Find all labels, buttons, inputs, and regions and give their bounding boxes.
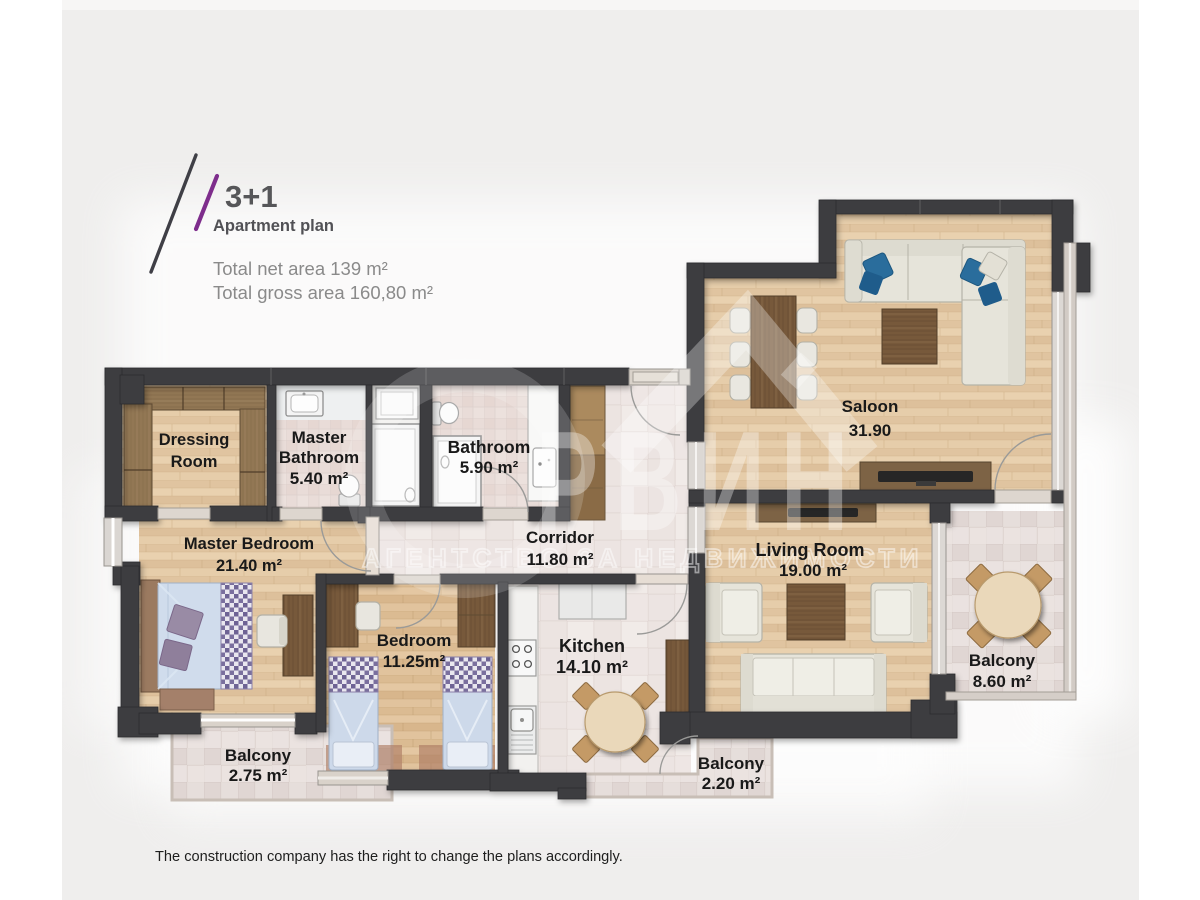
svg-text:Total gross area 160,80 m²: Total gross area 160,80 m² — [213, 282, 433, 303]
svg-text:Master: Master — [292, 428, 347, 447]
svg-text:Bathroom: Bathroom — [448, 437, 531, 457]
svg-text:11.25m²: 11.25m² — [383, 652, 446, 671]
svg-text:Total net area 139 m²: Total net area 139 m² — [213, 258, 388, 279]
svg-text:Bedroom: Bedroom — [377, 631, 452, 650]
svg-text:3+1: 3+1 — [225, 179, 278, 214]
svg-text:14.10 m²: 14.10 m² — [556, 657, 628, 677]
svg-text:Master Bedroom: Master Bedroom — [184, 535, 314, 553]
svg-text:5.90 m²: 5.90 m² — [460, 458, 519, 477]
svg-text:19.00 m²: 19.00 m² — [779, 561, 847, 580]
svg-text:2.20 m²: 2.20 m² — [702, 774, 761, 793]
svg-text:21.40 m²: 21.40 m² — [216, 557, 283, 575]
svg-text:11.80 m²: 11.80 m² — [526, 550, 593, 569]
svg-text:Balcony: Balcony — [225, 746, 292, 765]
svg-text:Saloon: Saloon — [842, 397, 899, 416]
svg-text:Bathroom: Bathroom — [279, 448, 359, 467]
svg-text:Balcony: Balcony — [698, 754, 765, 773]
svg-text:Balcony: Balcony — [969, 651, 1036, 670]
svg-text:Corridor: Corridor — [526, 528, 594, 547]
svg-text:8.60 m²: 8.60 m² — [973, 672, 1032, 691]
svg-text:Apartment plan: Apartment plan — [213, 217, 334, 235]
svg-text:Kitchen: Kitchen — [559, 636, 625, 656]
svg-text:5.40 m²: 5.40 m² — [290, 469, 349, 488]
svg-text:Living Room: Living Room — [756, 540, 865, 560]
svg-text:31.90: 31.90 — [849, 421, 892, 440]
svg-text:The construction company has t: The construction company has the right t… — [155, 849, 623, 865]
svg-text:2.75 m²: 2.75 m² — [229, 766, 288, 785]
svg-text:Dressing: Dressing — [159, 431, 230, 449]
svg-text:Room: Room — [171, 453, 218, 471]
